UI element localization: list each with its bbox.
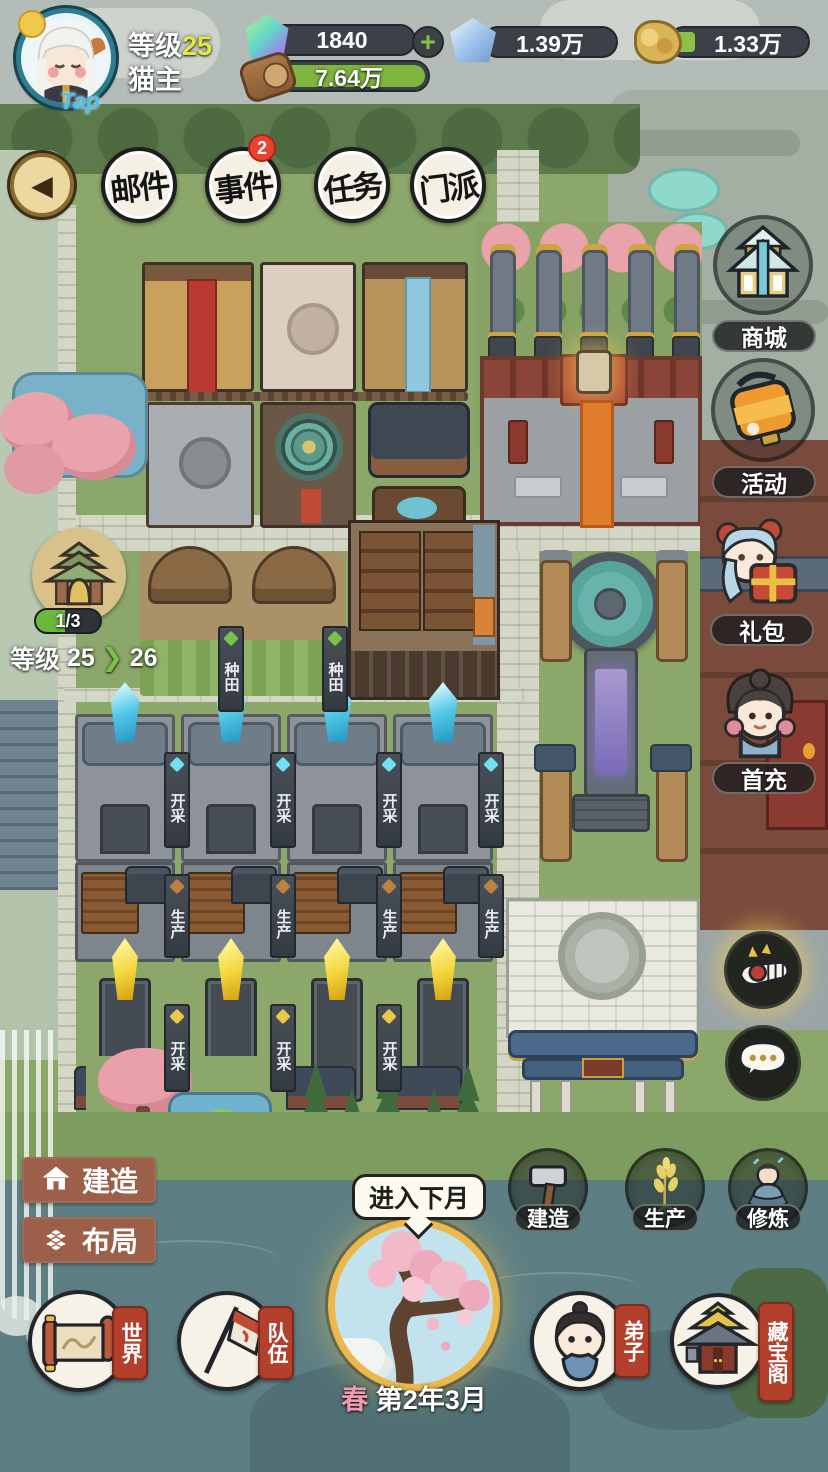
sect-level-from: 25 [67, 644, 95, 673]
team-flag-icon [187, 1301, 267, 1381]
stone-rug [179, 437, 231, 489]
gold-mine-banner: 开采 [270, 1004, 296, 1092]
carved-pillar [540, 560, 572, 662]
prayer-mat [620, 476, 668, 498]
building-mandala-hall[interactable] [260, 402, 356, 528]
build-mode-button[interactable]: 建造 [22, 1157, 156, 1203]
mine-banner-label: 开采 [379, 793, 400, 823]
farm-banner: 种田 [322, 626, 348, 712]
building-hall-stream[interactable] [362, 262, 468, 392]
mine-banner: 开采 [164, 752, 190, 848]
event-label: 事件 [211, 159, 274, 211]
carved-pillar [656, 560, 688, 662]
wood-icon [483, 879, 499, 895]
quick-build-label[interactable]: 建造 [514, 1204, 582, 1232]
temple-pillar [508, 420, 528, 464]
gate-roof-upper[interactable] [508, 1030, 698, 1058]
mail-button[interactable]: 邮件 [101, 147, 177, 223]
blossom-tree [4, 444, 64, 494]
gold-icon [634, 20, 682, 64]
collapse-menu-button[interactable]: ◀ [10, 153, 74, 217]
plant-icon [223, 631, 239, 647]
stele-glow [595, 669, 627, 775]
cloud-decoration [328, 1338, 385, 1376]
disc-knob [594, 588, 626, 620]
gift-pack-button[interactable] [709, 517, 805, 613]
floor-medallion [287, 303, 339, 355]
indoor-stream [405, 277, 431, 393]
sect-level-to: 26 [130, 644, 158, 673]
gold-resource-bar: 1.33万 [668, 26, 810, 58]
farm-banner: 种田 [218, 626, 244, 712]
mine-banner-label: 开采 [379, 1041, 400, 1071]
tap-label[interactable]: Tap [60, 88, 100, 115]
first-charge-girl-icon [712, 668, 808, 764]
gate-plaque [582, 1058, 624, 1078]
gold-value: 1.33万 [714, 25, 782, 59]
building-hall-red-carpet[interactable] [142, 262, 254, 392]
mine-banner: 开采 [376, 752, 402, 848]
shop-building[interactable] [348, 520, 500, 700]
quick-cultivate-label[interactable]: 修炼 [734, 1204, 802, 1232]
produce-banner-label: 生产 [379, 909, 400, 939]
gem-icon [169, 757, 185, 773]
plant-icon [327, 631, 343, 647]
wood-icon [169, 879, 185, 895]
wood-icon [275, 879, 291, 895]
mine-banner-label: 开采 [167, 1041, 188, 1071]
farm-banner-label: 种田 [221, 662, 242, 692]
produce-banner: 生产 [270, 874, 296, 958]
blossom-tree [52, 414, 136, 480]
gold-icon [169, 1009, 185, 1025]
produce-banner-label: 生产 [273, 909, 294, 939]
build-mode-label: 建造 [82, 1160, 138, 1200]
mini-gate-roof [650, 744, 692, 772]
team-label[interactable]: 队伍 [258, 1306, 294, 1380]
shelf [359, 531, 421, 631]
building-stone-hall[interactable] [146, 402, 254, 528]
house-icon [40, 1164, 72, 1196]
gold-mine[interactable] [284, 950, 390, 1110]
mine-banner-label: 开采 [167, 793, 188, 823]
cliff-ledge [630, 130, 800, 156]
produce-banner: 生产 [478, 874, 504, 958]
disciples-label[interactable]: 弟子 [614, 1304, 650, 1378]
dragon-pillar [490, 250, 516, 342]
mail-label: 邮件 [107, 159, 170, 211]
gold-mine-banner: 开采 [164, 1004, 190, 1092]
prayer-mat [514, 476, 562, 498]
date-row: 春 第2年3月 [328, 1378, 500, 1417]
jade-value: 1.39万 [516, 25, 584, 59]
dragon-pillar [628, 250, 654, 342]
disciple-icon [538, 1299, 622, 1383]
poster [473, 597, 495, 637]
shop-pavilion-icon [720, 222, 806, 308]
activity-label[interactable]: 活动 [712, 466, 816, 498]
gem-icon [381, 757, 397, 773]
shelf [423, 531, 479, 631]
level-prefix: 等级 [128, 31, 182, 61]
mine-banner-label: 开采 [273, 1041, 294, 1071]
crystal-value: 1840 [316, 27, 367, 54]
activity-button[interactable] [711, 358, 815, 462]
hand-pill-icon [730, 937, 796, 1003]
produce-banner: 生产 [376, 874, 402, 958]
shop-label[interactable]: 商城 [712, 320, 816, 352]
sect-level-row: 等级 25 ❯ 26 [10, 640, 158, 676]
railing [142, 392, 468, 401]
gold-icon [381, 1009, 397, 1025]
first-charge-label[interactable]: 首充 [712, 762, 816, 794]
dragon-pillar [536, 250, 562, 342]
gem-icon [483, 757, 499, 773]
sect-menu-label: 门派 [416, 159, 479, 211]
farm-banner-label: 种田 [325, 662, 346, 692]
game-screen: 种田 种田 开采 开采 开采 开采 生产 生产 生产 生产 开采 开采 [0, 0, 828, 1472]
season-label: 春 [341, 1385, 368, 1415]
mandala-floor [275, 413, 343, 481]
shop-button[interactable] [713, 215, 813, 315]
dragon-pillar [582, 250, 608, 342]
sect-progress-pill: 1/3 [34, 608, 102, 634]
event-badge: 2 [248, 134, 276, 162]
world-label[interactable]: 世界 [112, 1306, 148, 1380]
first-charge-button[interactable] [712, 668, 808, 764]
season-wheel-button[interactable] [328, 1219, 500, 1391]
dock [0, 700, 58, 890]
treasure-pavilion-label[interactable]: 藏宝阁 [758, 1302, 794, 1402]
spring-pool [648, 168, 720, 212]
mandala-carpet [301, 489, 321, 523]
gift-girl-icon [709, 517, 805, 613]
dragon-medallion [558, 912, 646, 1000]
crystal-resource-bar: 1840 [268, 24, 416, 56]
treasure-pavilion-icon [677, 1300, 759, 1382]
mini-gate-roof [534, 744, 576, 772]
pill-hand-button[interactable] [724, 931, 802, 1009]
gold-mine-banner: 开采 [376, 1004, 402, 1092]
log-end [260, 59, 293, 92]
plus-icon: + [420, 29, 436, 56]
produce-banner: 生产 [164, 874, 190, 958]
balcony [351, 651, 497, 697]
dragon-pillar [674, 250, 700, 342]
building-pavilion[interactable] [368, 402, 470, 478]
world-map-scroll-icon [39, 1301, 119, 1381]
produce-banner-label: 生产 [481, 909, 502, 939]
gem-icon [275, 757, 291, 773]
sect-menu-button[interactable]: 门派 [410, 147, 486, 223]
temple-pillar [654, 420, 674, 464]
wood-value: 7.64万 [315, 59, 383, 93]
chat-button[interactable] [725, 1025, 801, 1101]
produce-banner-label: 生产 [167, 909, 188, 939]
gold-mine[interactable] [390, 950, 496, 1110]
temple-statue [576, 350, 612, 394]
crystal-mine[interactable] [72, 698, 178, 862]
temple-carpet [580, 400, 614, 528]
grid-icon [40, 1224, 72, 1256]
task-button[interactable]: 任务 [314, 147, 390, 223]
task-label: 任务 [320, 159, 383, 211]
date-label: 第2年3月 [376, 1385, 487, 1415]
shrine-stele[interactable] [584, 648, 638, 798]
level-value: 25 [182, 31, 212, 61]
stele-base [572, 794, 650, 832]
building-hall-medallion[interactable] [260, 262, 356, 392]
layout-mode-label: 布局 [82, 1220, 138, 1260]
back-arrow-icon: ◀ [31, 169, 53, 202]
crystal-mine[interactable] [178, 698, 284, 862]
sect-gate-icon [41, 537, 117, 613]
wood-icon [381, 879, 397, 895]
chat-bubble-icon [731, 1031, 795, 1095]
gold-icon [275, 1009, 291, 1025]
add-crystal-button[interactable]: + [412, 26, 444, 58]
mine-banner-label: 开采 [273, 793, 294, 823]
gift-pack-label[interactable]: 礼包 [710, 614, 814, 646]
crystal-mine[interactable] [284, 698, 390, 862]
temple-hall[interactable] [480, 356, 702, 526]
treasure-pavilion-button[interactable] [670, 1293, 766, 1389]
mine-banner-label: 开采 [481, 793, 502, 823]
hall-carpet [187, 279, 217, 395]
quick-produce-label[interactable]: 生产 [631, 1204, 699, 1232]
sect-progress-text: 1/3 [55, 611, 80, 632]
mine-banner: 开采 [478, 752, 504, 848]
mine-banner: 开采 [270, 752, 296, 848]
moon-ornament [18, 10, 46, 38]
shrine-disc[interactable] [558, 552, 662, 656]
well-water [397, 497, 437, 519]
layout-mode-button[interactable]: 布局 [22, 1217, 156, 1263]
jade-resource-bar: 1.39万 [482, 26, 618, 58]
level-up-arrow-icon: ❯ [102, 643, 123, 673]
player-name: 猫主 [128, 58, 182, 97]
sect-level-prefix: 等级 [10, 640, 60, 676]
